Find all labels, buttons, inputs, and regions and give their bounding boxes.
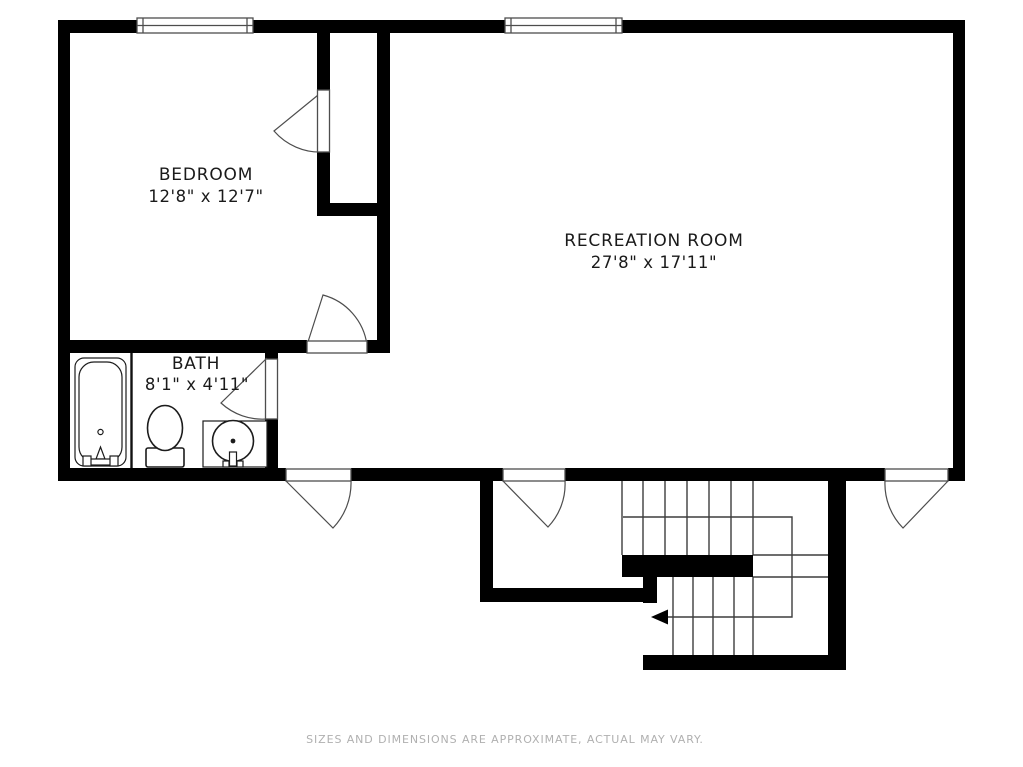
stair-upper-treads <box>622 481 753 555</box>
recreation-room-label: RECREATION ROOM 27'8" x 17'11" <box>564 231 743 272</box>
stair-landing-lines <box>753 555 828 577</box>
bath-name: BATH <box>172 354 220 374</box>
floorplan-canvas: BEDROOM 12'8" x 12'7" RECREATION ROOM 27… <box>0 0 1023 767</box>
stair-direction-arrow-icon <box>651 610 668 625</box>
bedroom-label: BEDROOM 12'8" x 12'7" <box>148 165 263 206</box>
closet-door-swing-icon <box>274 90 330 152</box>
bath-dimensions: 8'1" x 4'11" <box>145 375 249 394</box>
bedroom-window-icon <box>137 18 253 33</box>
bath-label: BATH 8'1" x 4'11" <box>145 354 249 394</box>
bedroom-name: BEDROOM <box>159 165 253 185</box>
toilet-icon <box>146 406 184 468</box>
sink-icon <box>203 421 267 468</box>
bathtub-icon <box>75 353 132 468</box>
bedroom-dimensions: 12'8" x 12'7" <box>148 187 263 206</box>
exterior-door-right-swing-icon <box>885 469 948 528</box>
recreation-room-name: RECREATION ROOM <box>564 231 743 251</box>
recreation-room-dimensions: 27'8" x 17'11" <box>591 253 717 272</box>
recreation-room-window-icon <box>505 18 622 33</box>
exterior-walls <box>58 20 965 481</box>
bedroom-door-swing-icon <box>307 295 367 353</box>
stair-lower-treads <box>673 577 753 655</box>
entry-door-swing-icon <box>503 469 565 527</box>
exterior-door-left-swing-icon <box>286 469 351 528</box>
disclaimer-text: SIZES AND DIMENSIONS ARE APPROXIMATE, AC… <box>306 733 704 746</box>
